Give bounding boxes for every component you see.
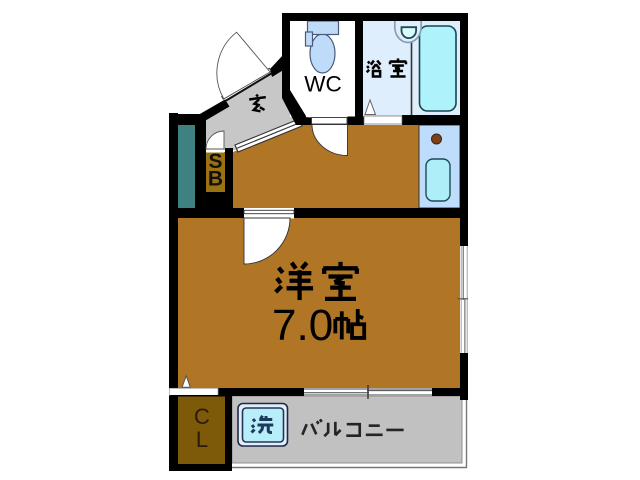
svg-text:B: B: [208, 168, 223, 191]
svg-text:WC: WC: [304, 72, 342, 97]
svg-text:L: L: [196, 427, 208, 452]
svg-text:C: C: [194, 404, 210, 429]
svg-text:7.0: 7.0: [272, 301, 333, 350]
